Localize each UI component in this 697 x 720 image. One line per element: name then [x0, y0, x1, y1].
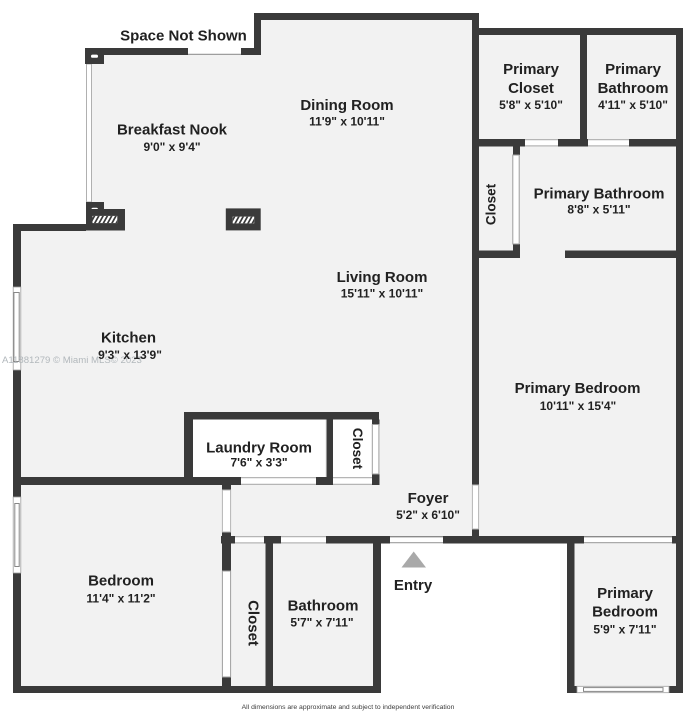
svg-text:Closet: Closet	[484, 183, 499, 225]
svg-text:9'0" x 9'4": 9'0" x 9'4"	[143, 140, 200, 154]
svg-text:Breakfast Nook: Breakfast Nook	[117, 122, 228, 139]
svg-text:Laundry Room: Laundry Room	[206, 440, 312, 457]
svg-text:11'9" x 10'11": 11'9" x 10'11"	[309, 115, 385, 129]
svg-text:Bedroom: Bedroom	[88, 573, 154, 590]
svg-text:Primary Bedroom: Primary Bedroom	[515, 380, 641, 397]
svg-text:Closet: Closet	[350, 428, 365, 470]
svg-text:15'11" x 10'11": 15'11" x 10'11"	[341, 287, 424, 301]
svg-text:Primary: Primary	[605, 61, 662, 78]
svg-text:5'9" x 7'11": 5'9" x 7'11"	[593, 623, 656, 637]
svg-text:Primary: Primary	[597, 585, 654, 602]
svg-text:Bathroom: Bathroom	[288, 598, 359, 615]
svg-text:Closet: Closet	[245, 600, 262, 646]
svg-text:10'11" x 15'4": 10'11" x 15'4"	[540, 399, 616, 413]
svg-text:11'4" x 11'2": 11'4" x 11'2"	[86, 592, 155, 606]
svg-text:Foyer: Foyer	[408, 490, 449, 507]
svg-text:Bathroom: Bathroom	[598, 80, 669, 97]
svg-text:4'11" x 5'10": 4'11" x 5'10"	[598, 98, 668, 112]
svg-text:All dimensions are approximate: All dimensions are approximate and subje…	[242, 704, 455, 711]
svg-text:Entry: Entry	[394, 577, 433, 594]
svg-text:5'7" x 7'11": 5'7" x 7'11"	[290, 616, 353, 630]
svg-text:7'6" x 3'3": 7'6" x 3'3"	[230, 456, 287, 470]
svg-text:9'3" x 13'9": 9'3" x 13'9"	[98, 348, 162, 362]
svg-text:Primary: Primary	[503, 61, 560, 78]
svg-text:5'8" x 5'10": 5'8" x 5'10"	[499, 98, 563, 112]
svg-text:Living Room: Living Room	[337, 269, 428, 286]
svg-text:8'8" x 5'11": 8'8" x 5'11"	[567, 203, 630, 217]
svg-text:5'2" x 6'10": 5'2" x 6'10"	[396, 508, 460, 522]
svg-text:Dining Room: Dining Room	[300, 97, 393, 114]
svg-text:Kitchen: Kitchen	[101, 330, 156, 347]
svg-text:Primary Bathroom: Primary Bathroom	[534, 186, 665, 203]
svg-text:Bedroom: Bedroom	[592, 604, 658, 621]
svg-text:Space Not Shown: Space Not Shown	[120, 28, 247, 45]
svg-text:Closet: Closet	[508, 80, 554, 97]
